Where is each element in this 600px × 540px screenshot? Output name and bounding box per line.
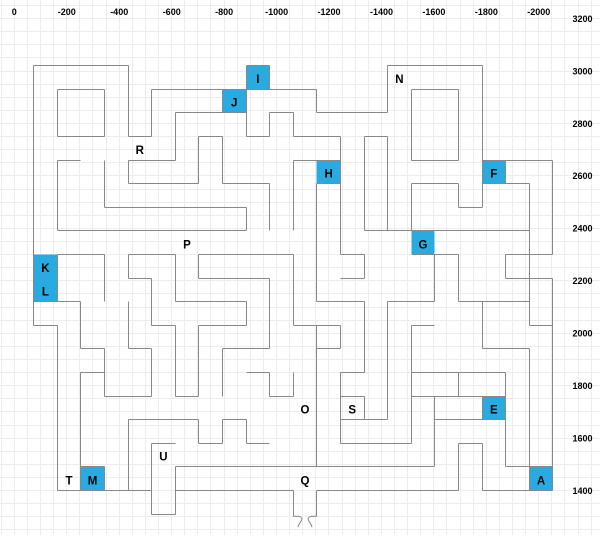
svg-text:2200: 2200 xyxy=(572,276,592,286)
svg-text:R: R xyxy=(136,145,145,157)
svg-text:1800: 1800 xyxy=(572,381,592,391)
svg-text:-800: -800 xyxy=(215,7,233,17)
svg-text:H: H xyxy=(324,169,332,181)
svg-text:T: T xyxy=(65,475,72,487)
svg-text:-2000: -2000 xyxy=(527,7,550,17)
svg-text:I: I xyxy=(256,74,259,86)
svg-text:N: N xyxy=(395,74,403,86)
svg-text:-1400: -1400 xyxy=(370,7,393,17)
svg-text:2800: 2800 xyxy=(572,119,592,129)
svg-text:2400: 2400 xyxy=(572,224,592,234)
svg-text:-1800: -1800 xyxy=(475,7,498,17)
svg-text:F: F xyxy=(490,169,497,181)
svg-text:-600: -600 xyxy=(163,7,181,17)
svg-text:G: G xyxy=(419,239,428,251)
svg-text:L: L xyxy=(42,287,49,299)
svg-text:M: M xyxy=(88,475,98,487)
svg-text:-1600: -1600 xyxy=(422,7,445,17)
svg-text:0: 0 xyxy=(12,7,17,17)
svg-text:S: S xyxy=(348,405,356,417)
svg-text:-1000: -1000 xyxy=(265,7,288,17)
svg-text:-1200: -1200 xyxy=(317,7,340,17)
svg-text:E: E xyxy=(490,405,498,417)
svg-text:Q: Q xyxy=(301,475,310,487)
svg-text:1600: 1600 xyxy=(572,433,592,443)
svg-text:-400: -400 xyxy=(110,7,128,17)
svg-text:A: A xyxy=(537,475,545,487)
svg-text:J: J xyxy=(231,98,237,110)
svg-text:3000: 3000 xyxy=(572,66,592,76)
svg-text:2600: 2600 xyxy=(572,171,592,181)
svg-text:K: K xyxy=(41,263,50,275)
svg-text:2000: 2000 xyxy=(572,329,592,339)
svg-text:1400: 1400 xyxy=(572,486,592,496)
svg-text:U: U xyxy=(159,452,167,464)
svg-text:-200: -200 xyxy=(58,7,76,17)
svg-text:3200: 3200 xyxy=(572,14,592,24)
svg-text:O: O xyxy=(301,405,310,417)
svg-text:P: P xyxy=(183,239,191,251)
